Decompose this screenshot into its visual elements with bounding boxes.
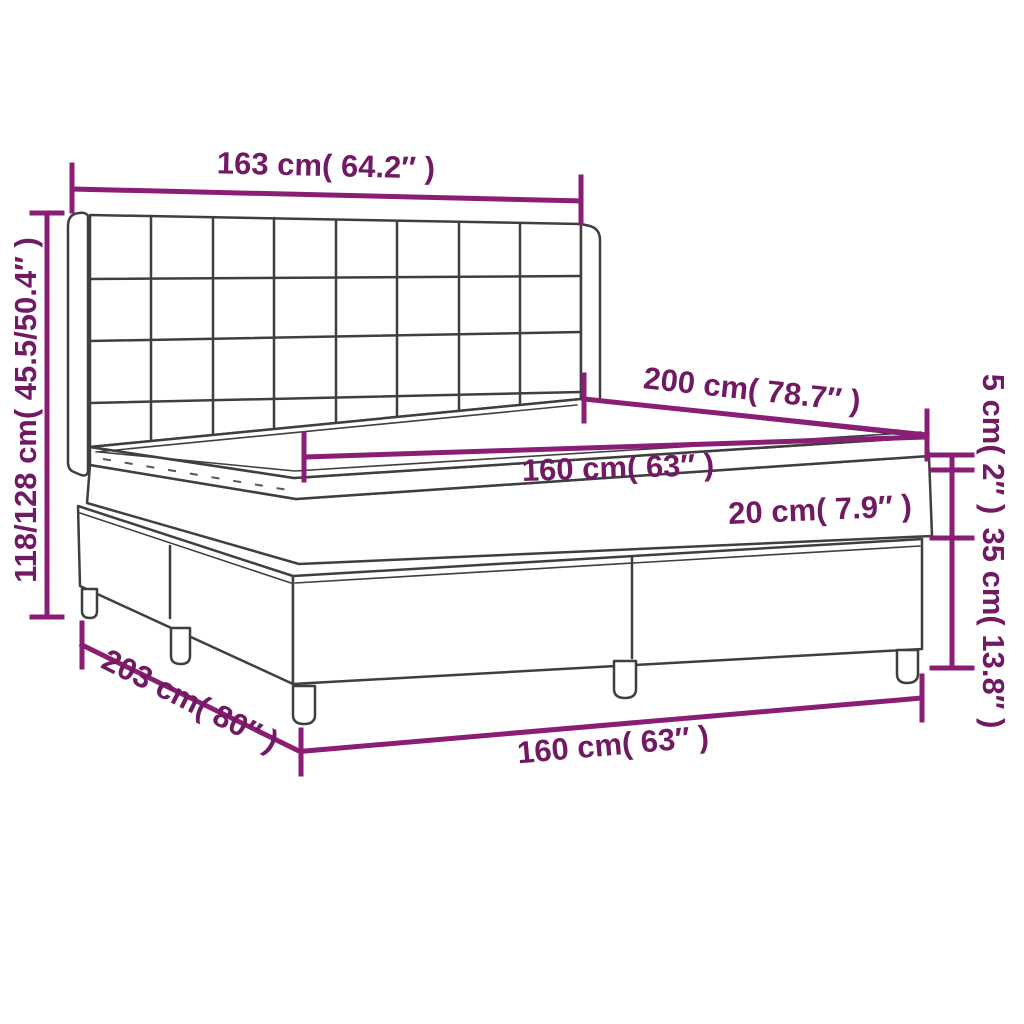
bed-leg [614, 661, 636, 698]
dim-label-headboard-height: 118/128 cm( 45.5/50.4″ ) [8, 237, 44, 583]
bed-leg [897, 650, 918, 683]
dim-label-topper-height: 5 cm( 2″ ) [975, 374, 1011, 515]
dim-label-headboard-width: 163 cm( 64.2″ ) [216, 145, 435, 186]
dim-label-base-height: 35 cm( 13.8″ ) [975, 528, 1011, 729]
bed-leg [293, 686, 315, 724]
bed-leg [171, 628, 190, 664]
bed-leg [82, 589, 97, 618]
headboard-left-wing [68, 213, 88, 476]
dim-label-mattress-width: 160 cm( 63″ ) [521, 447, 714, 489]
dim-line-topper-and-base-height [932, 455, 972, 668]
bed-dimension-diagram: 163 cm( 64.2″ ) 118/128 cm( 45.5/50.4″ )… [0, 0, 1024, 1024]
